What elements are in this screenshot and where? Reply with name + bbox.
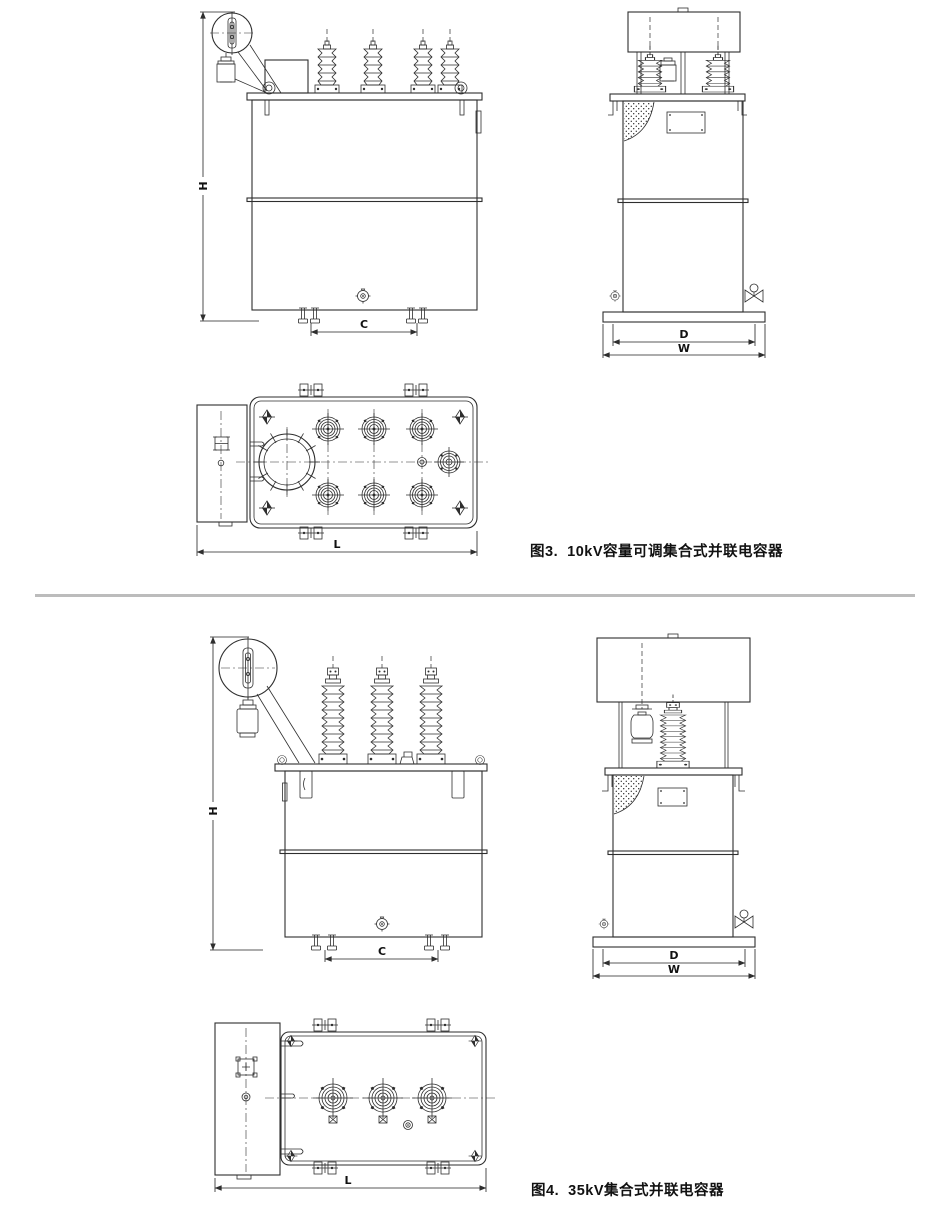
mounting-foot-plan <box>403 527 429 539</box>
fig3-side-base <box>603 312 765 322</box>
fig4-top-dim-l-label: L <box>344 1174 351 1187</box>
bushing-10kv <box>438 29 462 93</box>
fig4-side-band <box>608 851 738 855</box>
bushing-plan-icon <box>312 413 344 445</box>
fig4-oil-gauge-detail <box>219 637 315 763</box>
fig4-tank-lid <box>275 764 487 771</box>
fig4-side-base <box>593 937 755 947</box>
ground-terminal-icon <box>356 288 371 304</box>
fig4-top-l-dimension: L <box>215 1168 486 1192</box>
corner-mark-icon <box>452 410 468 424</box>
corner-mark-icon <box>259 501 275 515</box>
mounting-foot-plan <box>298 384 324 396</box>
fig3-caption: 图3. 10kV容量可调集合式并联电容器 <box>530 540 783 561</box>
fig4-tank-body <box>275 756 487 951</box>
corner-mark-icon <box>285 1150 298 1161</box>
fig3-top-side-box <box>197 405 247 526</box>
oil-cutaway-hatch <box>614 776 644 814</box>
corner-mark-icon <box>259 410 275 424</box>
fig3-bushings <box>315 29 462 93</box>
section-divider <box>35 594 915 597</box>
fig4-nameplate <box>658 788 687 806</box>
bushing-35kv <box>657 695 689 768</box>
fig3-side-top-frame <box>628 8 740 94</box>
fig3-front-c-dimension: C <box>311 318 417 336</box>
small-vent-fitting <box>400 752 414 764</box>
bushing-10kv <box>315 29 339 93</box>
fig4-top-bushings <box>265 1078 495 1130</box>
lifting-lug-icon <box>278 756 287 765</box>
fig4-front-dim-c-label: C <box>378 945 386 958</box>
fig4-front-c-dimension: C <box>325 945 438 962</box>
fig4-front-h-dimension: H <box>206 637 263 950</box>
mounting-foot-plan <box>403 384 429 396</box>
fig4-side-tank <box>593 768 755 947</box>
fig3-side-view: D W <box>590 5 790 360</box>
drain-valve-icon <box>735 910 753 928</box>
fig3-top-dim-l-label: L <box>333 538 340 551</box>
fig4-side-lid <box>605 768 742 775</box>
mounting-foot-plan <box>312 1019 338 1031</box>
fig4-side-top-frame <box>597 634 750 768</box>
fig4-side-dim-d-label: D <box>669 949 678 962</box>
ground-terminal-icon <box>609 290 620 302</box>
fig3-tank-band <box>247 198 482 202</box>
bushing-plan-icon <box>358 413 390 445</box>
bushing-10kv <box>634 46 665 92</box>
bushing-35kv <box>319 656 347 764</box>
fig4-front-dim-h-label: H <box>207 806 220 815</box>
fig4-front-view: H <box>195 628 515 990</box>
mounting-foot-plan <box>312 1162 338 1174</box>
bushing-plan-icon <box>406 479 438 511</box>
fig3-top-view: L <box>190 375 510 570</box>
fig3-terminal-box <box>265 60 308 93</box>
drawing-page: H <box>0 0 950 1214</box>
mounting-foot-plan <box>298 527 324 539</box>
bushing-10kv <box>411 29 435 93</box>
bushing-35kv <box>368 656 396 764</box>
fig3-nameplate <box>667 112 705 133</box>
fig3-front-dim-h-label: H <box>197 181 210 190</box>
fig4-bushings <box>319 656 445 764</box>
oil-cutaway-hatch <box>624 102 654 141</box>
fig3-side-tank <box>603 94 765 322</box>
fig4-side-dim-w-label: W <box>668 963 680 976</box>
fig3-side-band <box>618 199 748 203</box>
drain-valve-icon <box>745 284 763 302</box>
mounting-foot-plan <box>425 1162 451 1174</box>
fig3-top-l-dimension: L <box>197 525 477 556</box>
fig3-front-view: H <box>195 5 515 355</box>
bushing-plan-icon <box>358 479 390 511</box>
lifting-lug-icon <box>476 756 485 765</box>
fig3-front-dim-c-label: C <box>360 318 368 331</box>
fig4-tank-band <box>280 850 487 854</box>
bushing-10kv <box>361 29 385 93</box>
fig3-side-dim-w-label: W <box>678 342 690 355</box>
fig3-side-dim-d-label: D <box>679 328 688 341</box>
mounting-foot-plan <box>425 1019 451 1031</box>
corner-mark-icon <box>452 501 468 515</box>
bushing-plan-icon <box>406 413 438 445</box>
fig3-side-lid <box>610 94 745 101</box>
fig3-oil-gauge-detail <box>210 12 281 93</box>
fig3-top-bushings <box>236 409 488 515</box>
bushing-35kv <box>417 656 445 764</box>
ground-terminal-icon <box>599 918 610 929</box>
ground-terminal-icon <box>375 916 390 932</box>
bushing-plan-icon <box>312 479 344 511</box>
fig4-top-view: L <box>195 1010 515 1210</box>
fig4-side-view: D W <box>580 625 780 987</box>
fig3-front-h-dimension: H <box>196 12 259 321</box>
fig3-tank-body <box>247 60 482 323</box>
fig4-top-side-box <box>215 1023 280 1179</box>
fig4-caption: 图4. 35kV集合式并联电容器 <box>531 1179 724 1200</box>
fig4-top-tank <box>281 1019 486 1174</box>
fig3-tank-lid <box>247 93 482 100</box>
fig4-oil-cup <box>237 697 258 737</box>
fig4-arrester <box>631 705 653 743</box>
fig3-side-oil-cup <box>660 58 676 81</box>
